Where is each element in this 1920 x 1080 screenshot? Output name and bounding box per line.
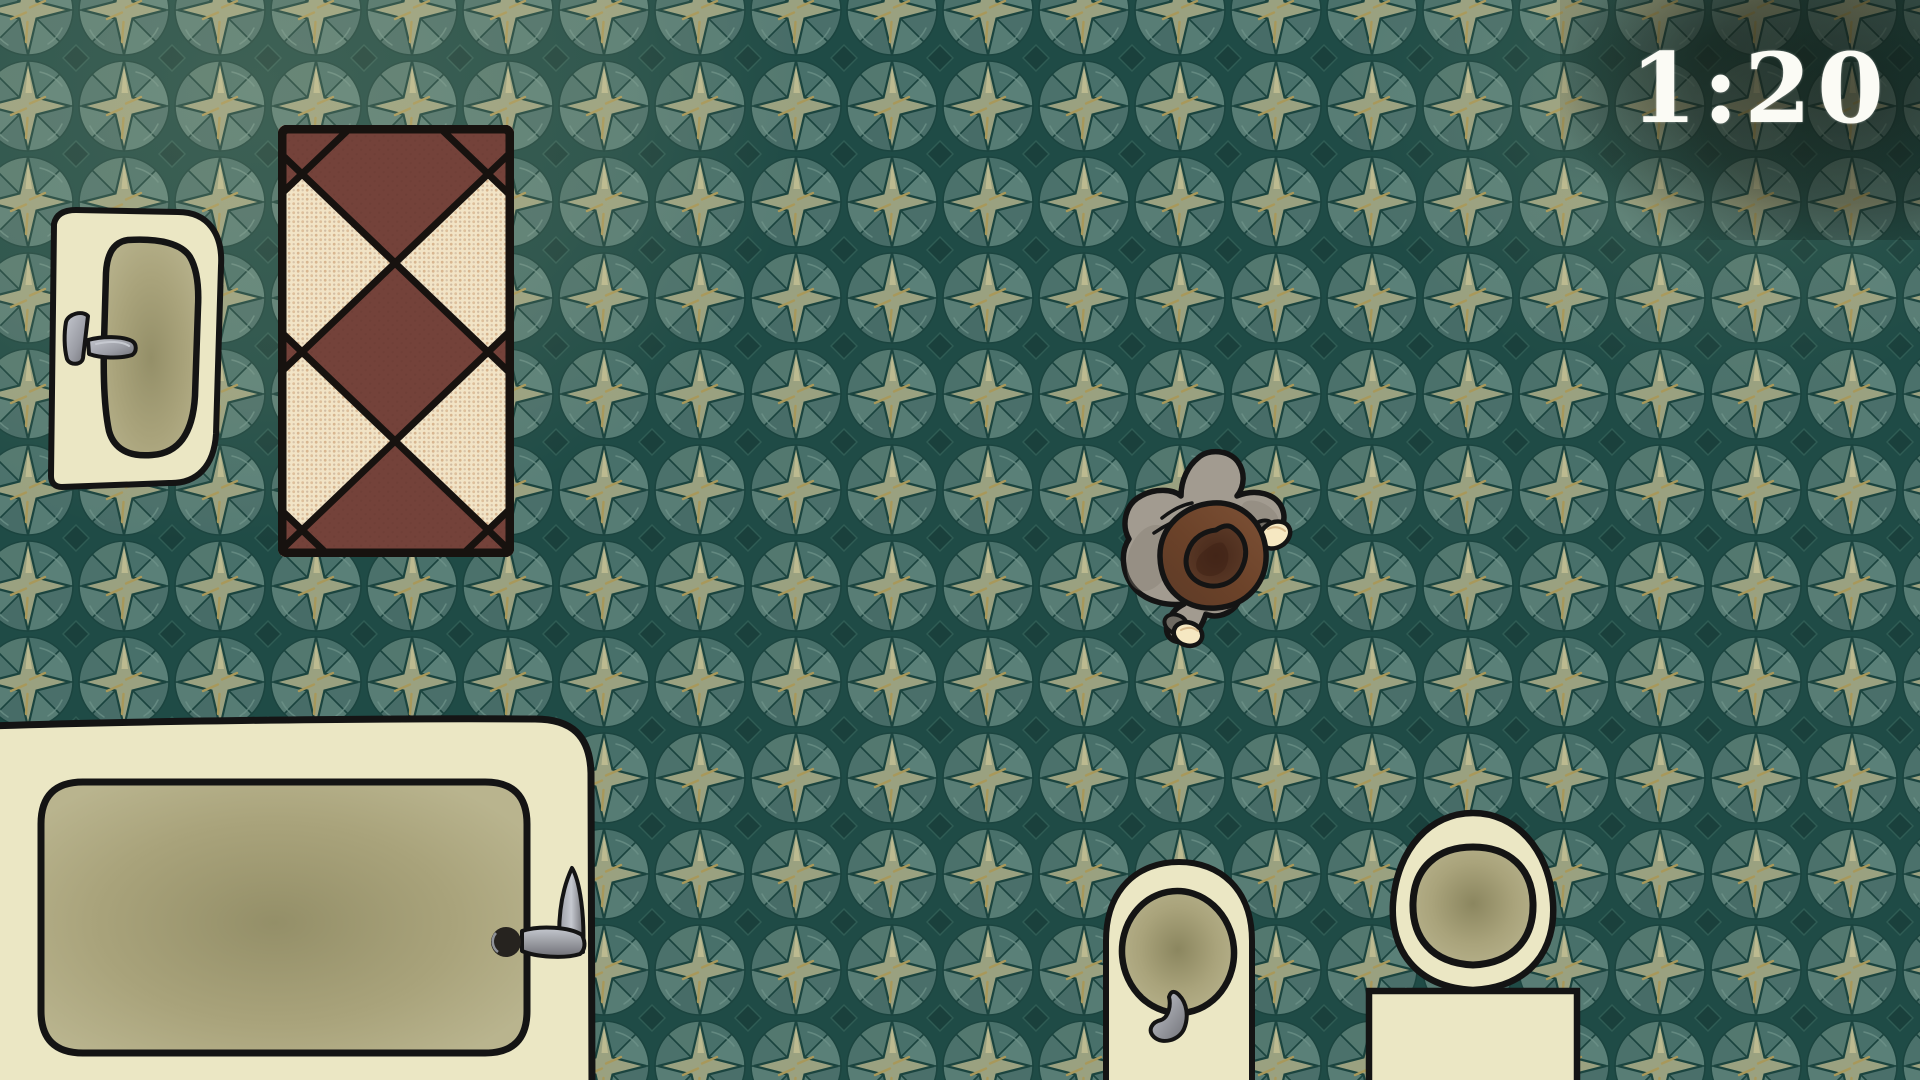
character-hat	[1160, 503, 1266, 608]
player-character[interactable]	[1098, 438, 1323, 663]
toilet-tank	[1369, 991, 1577, 1080]
toilet-basin	[1413, 847, 1533, 965]
rug	[278, 125, 514, 557]
game-viewport: 1:20	[0, 0, 1920, 1080]
bidet[interactable]	[1093, 853, 1268, 1080]
sink[interactable]	[30, 200, 240, 500]
timer-display: 1:20	[1620, 36, 1900, 142]
toilet[interactable]	[1362, 807, 1584, 1080]
bathtub-drain-knob[interactable]	[491, 927, 521, 957]
sink-faucet-handle[interactable]	[65, 313, 88, 364]
bathtub[interactable]	[0, 705, 650, 1080]
bathtub-faucet-spout[interactable]	[522, 928, 584, 957]
bathtub-basin	[41, 782, 527, 1053]
sink-faucet-spout[interactable]	[88, 337, 136, 357]
